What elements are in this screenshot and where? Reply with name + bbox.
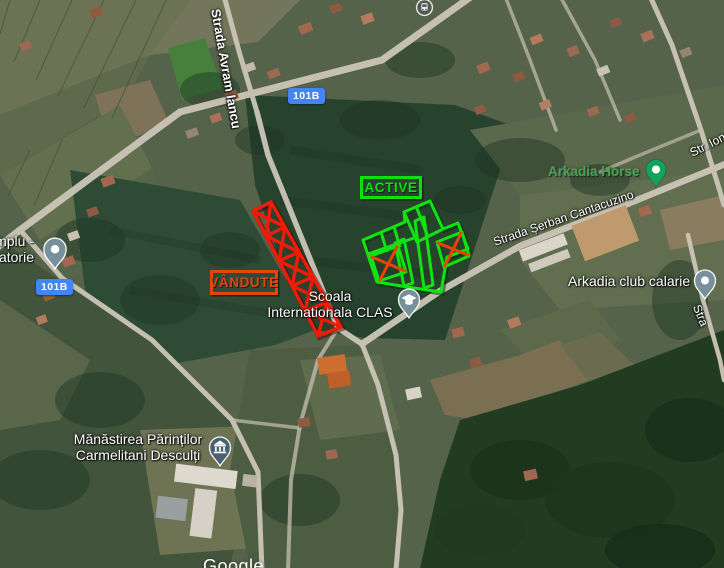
active-label-text: ACTIVE — [364, 180, 417, 195]
active-plots-grid[interactable] — [363, 201, 469, 293]
google-watermark: Google — [203, 556, 264, 568]
route-badge-text: 101B — [293, 90, 320, 102]
sold-plots-label[interactable]: VÂNDUTE — [210, 270, 278, 295]
satellite-map-canvas[interactable]: ACTIVE VÂNDUTE Strada Avram Iancu 101B 1… — [0, 0, 724, 568]
vandute-label-text: VÂNDUTE — [209, 275, 278, 290]
plot-overlays — [0, 0, 724, 568]
route-badge-text: 101B — [41, 281, 68, 293]
route-badge-101b-north: 101B — [288, 88, 325, 104]
route-badge-101b-west: 101B — [36, 279, 73, 295]
active-plots-label[interactable]: ACTIVE — [360, 176, 422, 199]
